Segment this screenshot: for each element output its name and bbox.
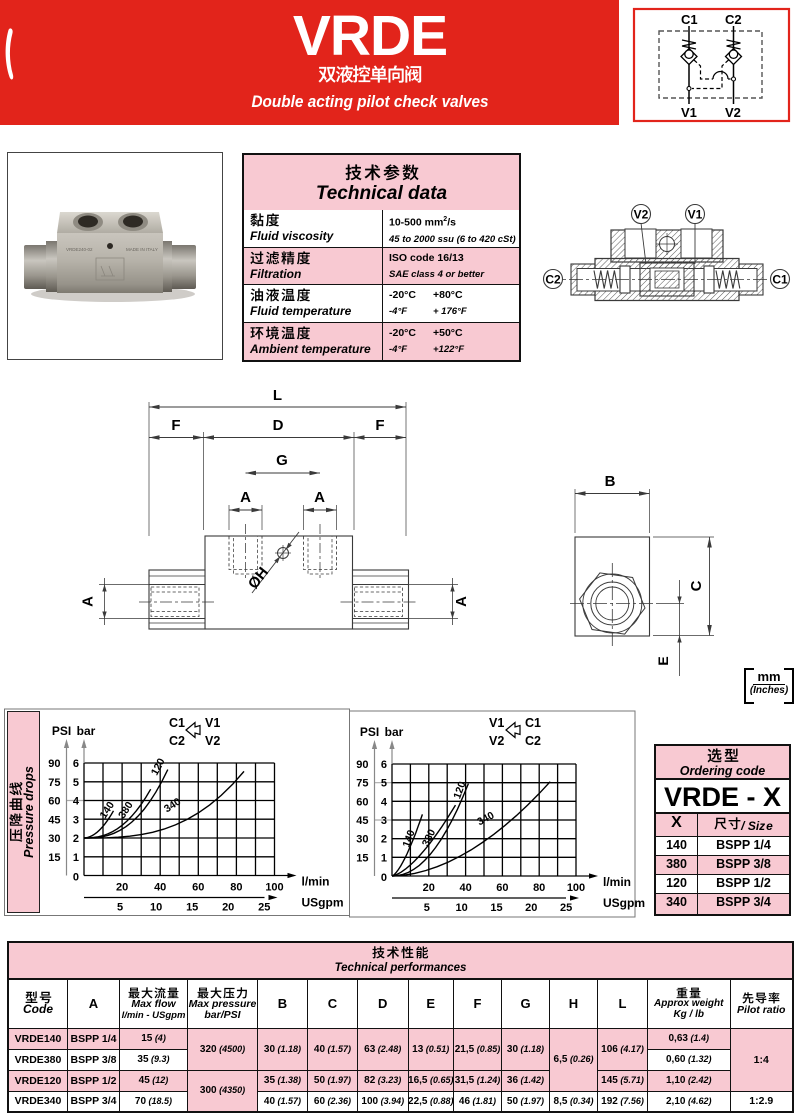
svg-text:6: 6 [73,758,79,770]
svg-text:20: 20 [116,882,128,894]
svg-text:5: 5 [424,902,430,914]
svg-text:75: 75 [356,778,368,790]
svg-text:80: 80 [533,882,545,894]
svg-text:4: 4 [381,796,388,808]
svg-text:45: 45 [48,814,60,826]
svg-text:MADE IN ITALY: MADE IN ITALY [126,247,158,252]
svg-text:C2: C2 [169,734,185,748]
svg-text:G: G [276,452,288,469]
svg-text:A: A [314,489,325,506]
svg-text:C1: C1 [525,716,541,730]
svg-text:1: 1 [73,852,79,864]
svg-text:90: 90 [48,758,60,770]
svg-text:60: 60 [356,796,368,808]
svg-text:5: 5 [381,778,387,790]
svg-text:2: 2 [381,834,387,846]
svg-text:30: 30 [356,834,368,846]
svg-text:V2: V2 [205,734,220,748]
svg-text:l/min: l/min [302,875,330,889]
svg-text:10: 10 [455,902,467,914]
svg-text:2: 2 [73,833,79,845]
svg-text:90: 90 [356,759,368,771]
svg-text:V2: V2 [489,734,504,748]
svg-text:C2: C2 [525,734,541,748]
svg-text:100: 100 [567,882,585,894]
svg-text:4: 4 [73,796,80,808]
svg-text:V1: V1 [688,208,703,222]
svg-text:60: 60 [192,882,204,894]
svg-text:100: 100 [265,882,283,894]
svg-text:B: B [605,473,616,490]
svg-text:40: 40 [459,882,471,894]
svg-text:15: 15 [48,852,60,864]
svg-text:20: 20 [525,902,537,914]
svg-text:0: 0 [73,872,79,884]
svg-text:F: F [171,417,180,434]
svg-text:25: 25 [560,902,572,914]
svg-text:45: 45 [356,815,368,827]
svg-text:25: 25 [258,902,270,914]
svg-text:C2: C2 [545,273,561,287]
svg-text:A: A [240,489,251,506]
svg-text:PSI: PSI [52,724,71,738]
svg-text:10: 10 [150,902,162,914]
svg-text:3: 3 [381,815,387,827]
svg-text:D: D [273,417,284,434]
svg-text:60: 60 [48,796,60,808]
svg-text:VRDE240-02: VRDE240-02 [66,247,93,252]
svg-text:A: A [80,596,97,607]
svg-text:V1: V1 [489,716,504,730]
svg-text:15: 15 [490,902,502,914]
svg-text:15: 15 [356,852,368,864]
svg-text:bar: bar [77,724,96,738]
svg-text:5: 5 [73,777,79,789]
svg-text:3: 3 [73,814,79,826]
svg-text:80: 80 [230,882,242,894]
svg-text:75: 75 [48,777,60,789]
svg-text:V1: V1 [205,716,220,730]
svg-text:0: 0 [381,872,387,884]
svg-text:L: L [273,387,282,404]
svg-text:15: 15 [186,902,198,914]
svg-text:F: F [375,417,384,434]
svg-text:60: 60 [496,882,508,894]
svg-text:20: 20 [423,882,435,894]
svg-text:5: 5 [117,902,123,914]
svg-text:20: 20 [222,902,234,914]
svg-text:30: 30 [48,833,60,845]
svg-text:bar: bar [385,725,404,739]
svg-text:C1: C1 [772,273,788,287]
svg-text:C1: C1 [169,716,185,730]
svg-text:l/min: l/min [603,875,631,889]
svg-text:40: 40 [154,882,166,894]
svg-text:USgpm: USgpm [603,896,645,910]
svg-text:A: A [453,596,470,607]
svg-text:1: 1 [381,852,387,864]
svg-text:USgpm: USgpm [302,896,344,910]
svg-text:6: 6 [381,759,387,771]
svg-text:E: E [655,656,671,665]
svg-text:V2: V2 [634,208,649,222]
svg-text:PSI: PSI [360,725,379,739]
svg-text:C: C [688,580,705,591]
